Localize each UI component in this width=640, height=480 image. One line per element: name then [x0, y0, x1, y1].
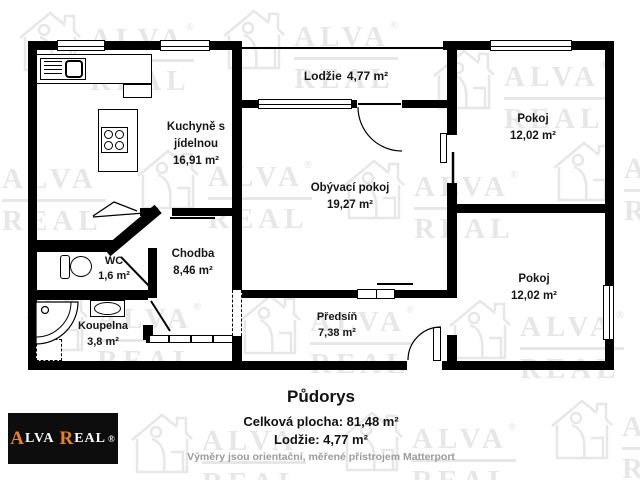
room-label-wc: WC 1,6 m²: [98, 254, 130, 284]
logo-text: LVA: [25, 431, 54, 447]
room-name: jídelnou: [167, 136, 225, 153]
wardrobe-tick: [168, 335, 170, 343]
watermark-real: REAL: [624, 197, 640, 226]
closet-line: [170, 217, 215, 219]
watermark: ALVA®REAL: [552, 140, 640, 226]
watermark-alva: ALVA: [504, 61, 600, 93]
wall: [28, 240, 113, 252]
window: [603, 285, 614, 340]
logo-text: EAL: [74, 431, 106, 447]
total-area-text: Celková plocha: 81,48 m²: [243, 414, 398, 429]
open-passage-dashed: [232, 290, 242, 336]
page-title: Půdorys: [287, 387, 355, 407]
room-area: 16,91 m²: [167, 153, 225, 170]
logo-initial: A: [10, 428, 25, 450]
watermark: ALVA®REAL: [550, 398, 640, 480]
room-area: 3,8 m²: [78, 334, 128, 350]
watermark-alva: ALVA: [414, 171, 510, 203]
loggia-window: [258, 99, 352, 109]
watermark-real: REAL: [202, 469, 306, 480]
loggia-railing: [232, 47, 448, 49]
room-name: Pokoj: [510, 111, 556, 128]
house-watermark-icon: [550, 398, 614, 460]
watermark-reg: ®: [390, 19, 398, 31]
watermark-reg: ®: [186, 21, 194, 33]
room-name: Chodba: [172, 246, 215, 263]
wall: [232, 100, 258, 108]
room-name: Koupelna: [78, 318, 128, 334]
watermark-alva: ALVA: [2, 163, 98, 195]
burner-icon: [115, 130, 124, 139]
window: [57, 40, 105, 51]
wall: [232, 41, 242, 290]
house-watermark-icon: [130, 412, 194, 474]
alva-real-logo: ALVAREAL®: [8, 413, 118, 464]
logo-initial: R: [59, 428, 74, 450]
watermark-alva: ALVA: [624, 153, 640, 185]
room-area: 1,6 m²: [98, 269, 130, 284]
wall: [148, 248, 157, 298]
sink-drainer-icon: [44, 61, 62, 77]
watermark-reg: ®: [304, 159, 312, 171]
room-name: Předsíň: [317, 309, 357, 325]
room-label-hallway: Chodba 8,46 m²: [172, 246, 215, 280]
house-watermark-icon: [238, 293, 302, 355]
room-area: 4,77 m²: [347, 69, 388, 83]
loggia-area-text: Lodžie: 4,77 m²: [274, 432, 368, 447]
toilet-bowl-icon: [70, 256, 92, 277]
bathroom-sink-basin-icon: [94, 302, 121, 315]
room-label-bathroom: Koupelna 3,8 m²: [78, 318, 128, 350]
closet-line: [377, 283, 413, 285]
wall: [28, 361, 407, 370]
wall: [442, 361, 614, 370]
room-label-room1: Pokoj 12,02 m²: [510, 111, 556, 145]
burner-icon: [104, 141, 113, 150]
watermark: ALVA®REAL: [448, 298, 624, 384]
wall: [395, 290, 457, 298]
wall: [402, 100, 457, 108]
toilet-tank-icon: [60, 255, 70, 279]
wall: [447, 204, 614, 213]
window: [490, 40, 572, 51]
watermark-real: REAL: [414, 215, 518, 244]
room-area: 19,27 m²: [311, 197, 390, 214]
burner-icon: [115, 141, 124, 150]
room1-door-leaf: [440, 133, 447, 163]
watermark-alva: ALVA: [622, 411, 640, 443]
room-label-living: Obývací pokoj 19,27 m²: [311, 180, 390, 214]
room-area: 12,02 m²: [510, 128, 556, 145]
watermark-reg: ®: [616, 309, 624, 321]
watermark-real: REAL: [412, 467, 516, 480]
watermark-real: REAL: [2, 207, 106, 236]
floor-plan-page: ALVA®REAL ALVA®REAL ALVA®REAL ALVA®REAL …: [0, 0, 640, 480]
wall: [28, 290, 148, 300]
wall: [172, 208, 237, 216]
watermark-reg: ®: [406, 304, 414, 316]
washer-icon: [36, 339, 62, 361]
wall: [232, 336, 242, 370]
window: [160, 40, 210, 51]
watermark-real: REAL: [622, 455, 640, 480]
kitchen-counter: [123, 84, 152, 98]
wardrobe-tick: [212, 335, 214, 343]
entry-door-leaf: [433, 327, 441, 361]
wardrobe-cap: [146, 335, 150, 343]
room-label-loggia: Lodžie4,77 m²: [304, 68, 388, 85]
wall: [28, 41, 37, 370]
glazed-opening: [357, 289, 395, 299]
wall: [352, 100, 357, 108]
registered-mark-icon: ®: [108, 434, 116, 444]
house-watermark-icon: [448, 298, 512, 360]
watermark-alva: ALVA: [520, 311, 616, 343]
wardrobe-tick: [190, 335, 192, 343]
room-label-room2: Pokoj 12,02 m²: [511, 271, 557, 305]
wall: [447, 183, 457, 297]
room-name: Obývací pokoj: [311, 180, 390, 197]
wall: [447, 41, 457, 135]
watermark: ALVA®REAL: [0, 150, 106, 236]
room-label-kitchen: Kuchyně s jídelnou 16,91 m²: [167, 119, 225, 170]
room-name: Kuchyně s: [167, 119, 225, 136]
watermark-reg: ®: [193, 301, 201, 313]
sink-basin-icon: [65, 60, 83, 78]
room-area: 12,02 m²: [511, 288, 557, 305]
wall: [447, 335, 457, 361]
balcony-door-arc: [358, 107, 402, 151]
watermark-reg: ®: [510, 169, 518, 181]
room-name: Lodžie: [304, 69, 342, 83]
wall: [242, 290, 357, 298]
room-name: WC: [98, 254, 130, 269]
burner-icon: [104, 130, 113, 139]
room-label-entry: Předsíň 7,38 m²: [317, 309, 357, 341]
room-name: Pokoj: [511, 271, 557, 288]
disclaimer-text: Výměry jsou orientační, měřené přístroje…: [187, 451, 455, 463]
room-area: 7,38 m²: [317, 325, 357, 341]
room-area: 8,46 m²: [172, 263, 215, 280]
watermark-reg: ®: [508, 421, 516, 433]
